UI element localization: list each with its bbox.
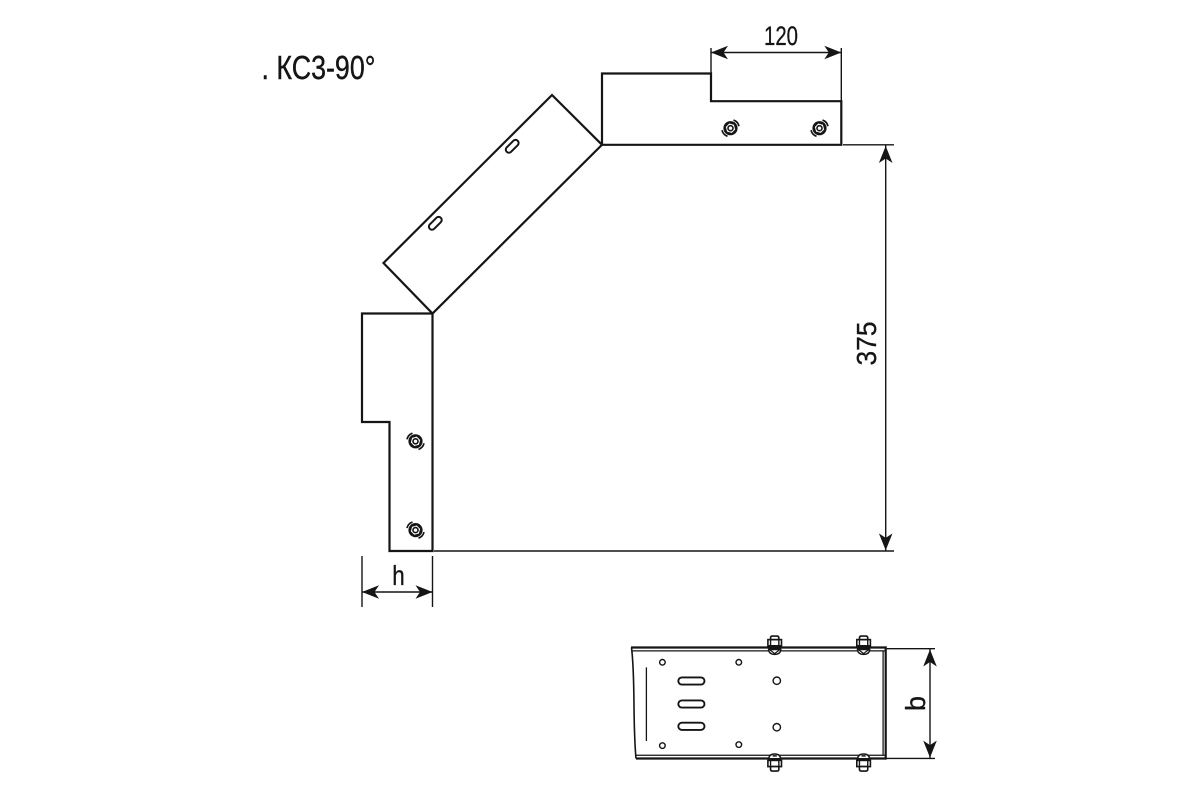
- svg-text:375: 375: [851, 322, 882, 366]
- svg-text:120: 120: [764, 21, 798, 51]
- svg-text:. КС3-90°: . КС3-90°: [262, 49, 376, 86]
- svg-text:h: h: [392, 560, 405, 591]
- svg-text:b: b: [900, 696, 931, 711]
